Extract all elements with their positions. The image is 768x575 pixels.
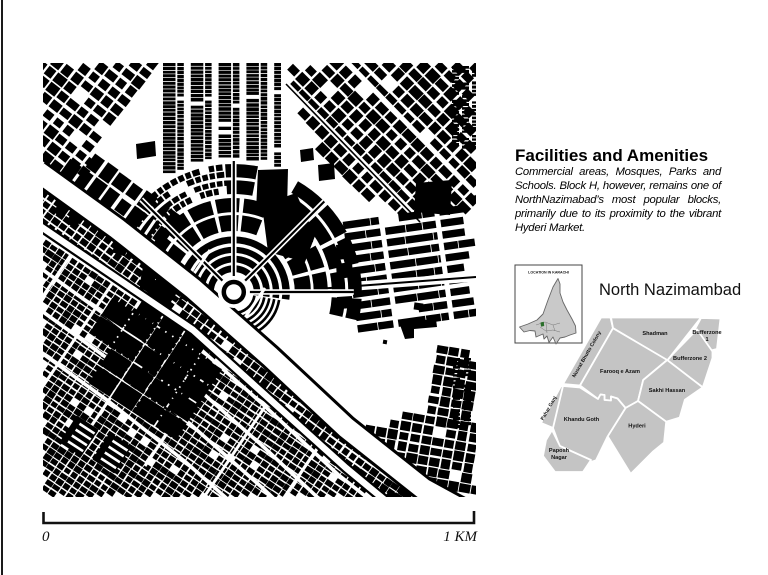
svg-text:Khandu Goth: Khandu Goth	[564, 417, 600, 423]
svg-text:Bufferzone: Bufferzone	[692, 330, 721, 336]
svg-text:Paposh: Paposh	[549, 448, 570, 454]
svg-text:Shadman: Shadman	[642, 331, 668, 337]
svg-text:Sakhi Hassan: Sakhi Hassan	[649, 388, 686, 394]
svg-text:Nagar: Nagar	[551, 455, 568, 461]
svg-text:Hyderi: Hyderi	[628, 424, 646, 430]
svg-text:Bufferzone 2: Bufferzone 2	[673, 356, 707, 362]
svg-text:North Nazimambad: North Nazimambad	[599, 281, 741, 299]
svg-text:1: 1	[705, 337, 708, 343]
svg-text:LOCATION IN KARACHI: LOCATION IN KARACHI	[528, 271, 569, 275]
svg-text:Farooq e Azam: Farooq e Azam	[600, 369, 640, 375]
